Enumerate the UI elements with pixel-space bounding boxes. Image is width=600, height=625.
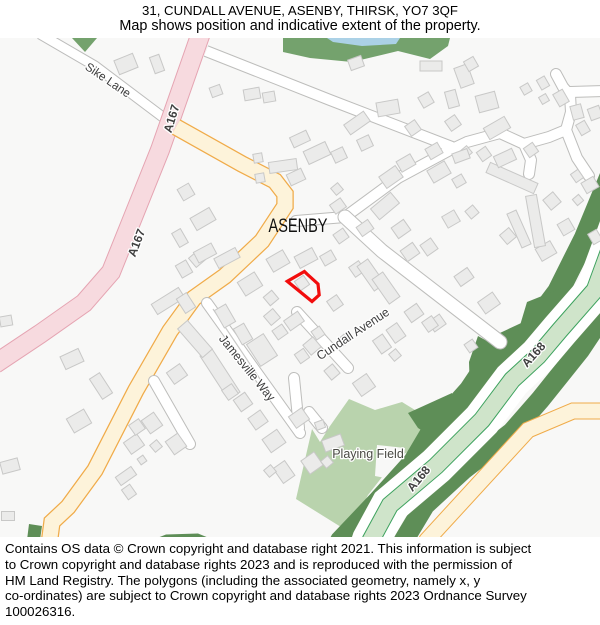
svg-text:ASENBY: ASENBY: [269, 216, 328, 237]
svg-text:Playing Field: Playing Field: [332, 447, 404, 461]
